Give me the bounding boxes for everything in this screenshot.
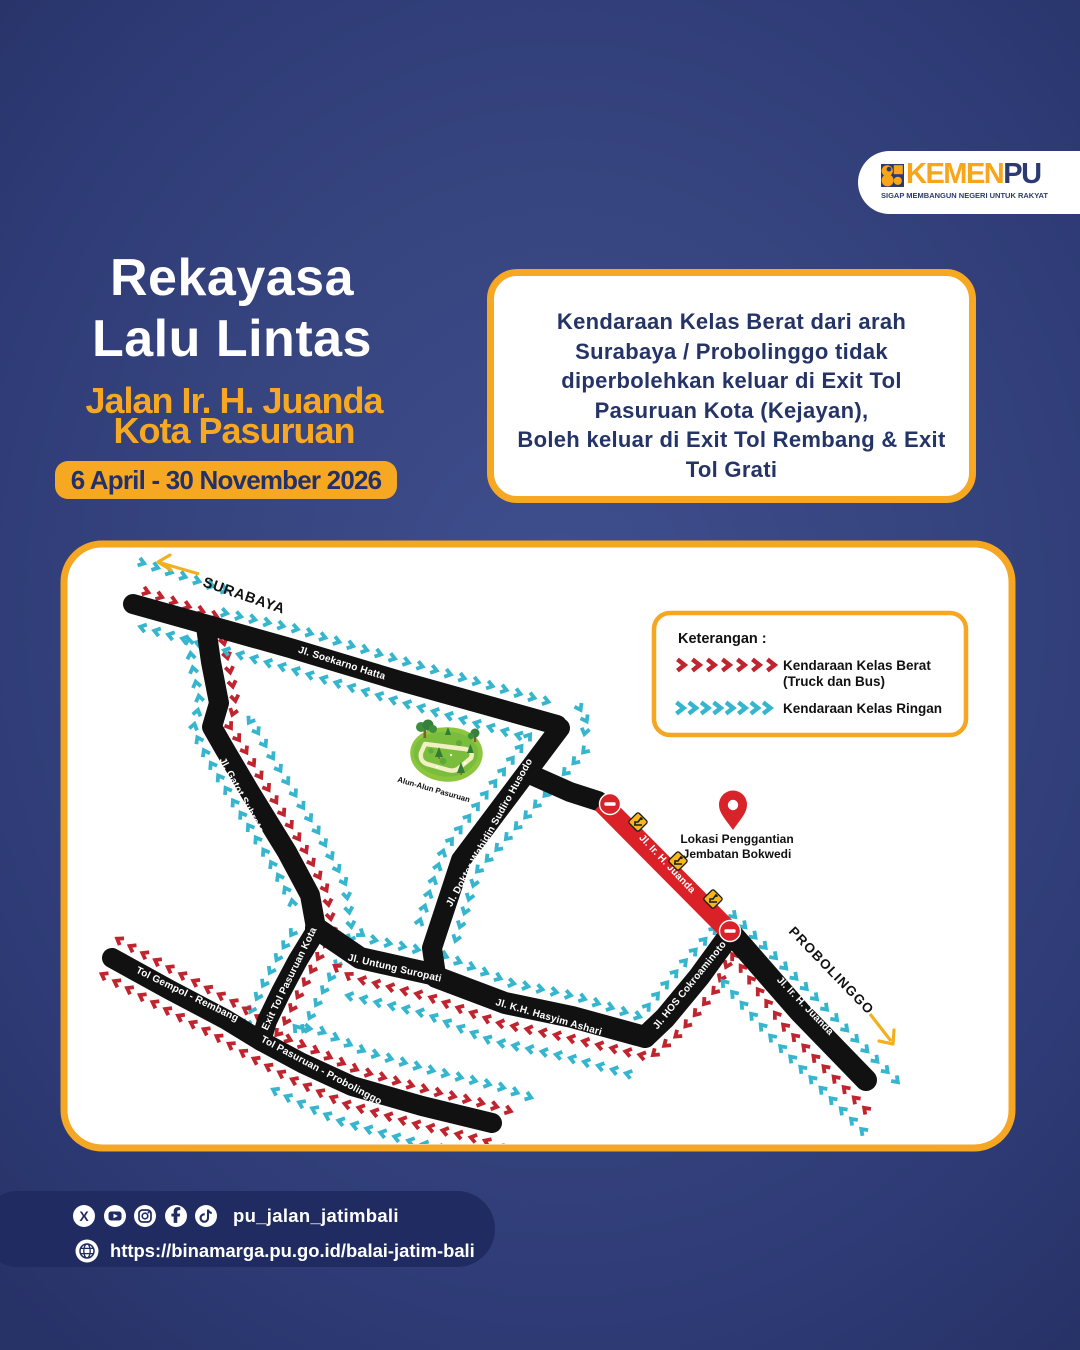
svg-text:(Truck dan Bus): (Truck dan Bus) [783, 674, 885, 689]
svg-text:https://binamarga.pu.go.id/bal: https://binamarga.pu.go.id/balai-jatim-b… [110, 1240, 475, 1261]
svg-text:Jembatan Bokwedi: Jembatan Bokwedi [683, 847, 792, 861]
svg-text:Kendaraan Kelas Berat: Kendaraan Kelas Berat [783, 658, 931, 673]
svg-text:X: X [79, 1208, 89, 1224]
svg-text:Kendaraan Kelas Ringan: Kendaraan Kelas Ringan [783, 701, 942, 716]
svg-text:Lokasi Penggantian: Lokasi Penggantian [680, 832, 793, 846]
svg-text:pu_jalan_jatimbali: pu_jalan_jatimbali [233, 1205, 399, 1226]
svg-text:Keterangan :: Keterangan : [678, 631, 767, 647]
